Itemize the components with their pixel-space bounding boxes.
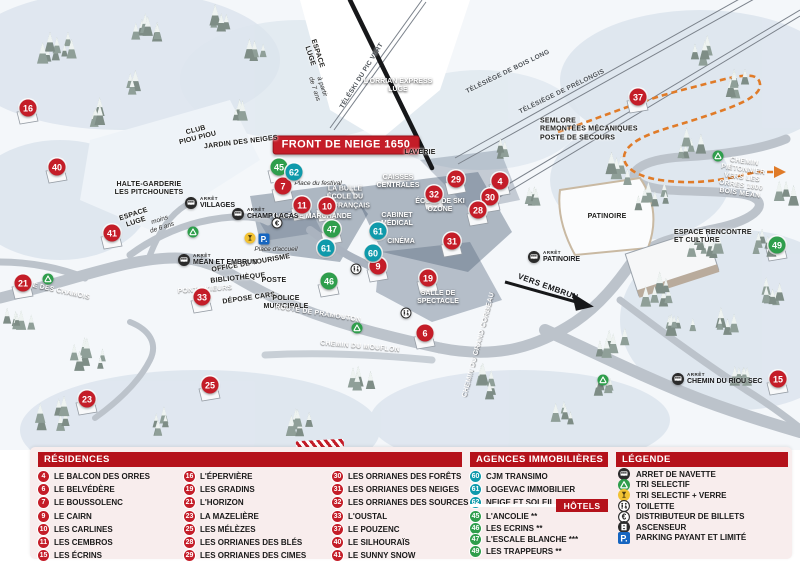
legend-item-label: LES ORRIANES DES SOURCES — [348, 498, 468, 507]
map-marker-61-26: 61 — [318, 240, 335, 257]
map-marker-47-22: 47 — [324, 221, 341, 238]
map-marker-11-8: 11 — [294, 197, 311, 214]
bus-stop-villages: ARRÊTVILLAGES — [185, 197, 235, 209]
recycle-icon — [598, 375, 609, 386]
svg-text:P.: P. — [620, 533, 627, 543]
legend-item-label: LA MAZELIÈRE — [200, 512, 259, 521]
legend-badge-40: 40 — [332, 537, 343, 548]
legend-badge-6: 6 — [38, 484, 49, 495]
legend-item-label: LE BOUSSOLENC — [54, 498, 123, 507]
recycle-icon — [188, 227, 199, 238]
legend-badge-10: 10 — [38, 524, 49, 535]
recycle-icon — [713, 151, 724, 162]
legend-badge-28: 28 — [184, 537, 195, 548]
legend-badge-47: 47 — [470, 534, 481, 545]
legend-item-label: LES MÉLÈZES — [200, 525, 256, 534]
map-label-7: CINÉMA — [387, 238, 415, 246]
legende-header: LÉGENDE — [616, 452, 788, 467]
legend-badge-19: 19 — [184, 484, 195, 495]
legend-item-9: 9LE CAIRN — [38, 510, 184, 523]
svg-text:€: € — [622, 512, 627, 521]
legend-item-31: 31LES ORRIANES DES NEIGES — [332, 483, 470, 496]
bus-stop-chemin-du-riou-sec: ARRÊTCHEMIN DU RIOU SEC — [672, 373, 762, 385]
bus-icon — [232, 208, 244, 220]
map-marker-33-6: 33 — [194, 289, 211, 306]
legend-item-label: L'ANCOLIE ** — [486, 512, 537, 521]
parking-icon: P. — [259, 234, 270, 245]
map-marker-21-3: 21 — [15, 275, 32, 292]
legend-item: ARRET DE NAVETTE — [618, 469, 788, 480]
legend-item-label: ARRET DE NAVETTE — [636, 470, 716, 479]
map-label-26: SEMLORE REMONTÉES MÉCANIQUES POSTE DE SE… — [540, 118, 638, 143]
legend-item: €DISTRIBUTEUR DE BILLETS — [618, 511, 788, 522]
legend-item-19: 19LES GRADINS — [184, 483, 330, 496]
legend-badge-31: 31 — [332, 484, 343, 495]
legend-badge-32: 32 — [332, 497, 343, 508]
map-marker-16-0: 16 — [20, 100, 37, 117]
legend-item-45: 45L'ANCOLIE ** — [470, 511, 608, 523]
map-label-11: BIBLIOTHÈQUE — [210, 272, 266, 286]
legend-item-label: LE BALCON DES ORRES — [54, 472, 150, 481]
legend-item-label: LE POUZENC — [348, 525, 400, 534]
map-label-28: PATINOIRE — [588, 213, 627, 221]
legend-item: TOILETTE — [618, 501, 788, 512]
legend-item-41: 41LE SUNNY SNOW — [332, 549, 470, 562]
resort-map-page: FRONT DE NEIGE 1650LAVERIECAISSES CENTRA… — [0, 0, 800, 565]
bus-icon — [178, 254, 190, 266]
map-marker-23-4: 23 — [79, 391, 96, 408]
residences-column-1: 4LE BALCON DES ORRES6LE BELVÉDÈRE7LE BOU… — [38, 470, 184, 562]
legend-item-label: LE SUNNY SNOW — [348, 551, 415, 560]
legend-item-label: LES ORRIANES DES NEIGES — [348, 485, 459, 494]
legend-item-29: 29LES ORRIANES DES CIMES — [184, 549, 330, 562]
map-label-24: TÉLÉSIÈGE DE BOIS LONG — [465, 48, 551, 95]
map-label-15: HALTE-GARDERIE LES PITCHOUNETS — [115, 181, 184, 198]
svg-text:€: € — [275, 218, 279, 227]
legend-item-28: 28LES ORRIANES DES BLÉS — [184, 536, 330, 549]
legend-badge-29: 29 — [184, 550, 195, 561]
legend-badge-11: 11 — [38, 537, 49, 548]
map-label-6: CABINET MÉDICAL — [381, 212, 413, 229]
recycle-icon — [352, 323, 363, 334]
glass-icon — [245, 233, 256, 244]
legend-badge-16: 16 — [184, 471, 195, 482]
agencies-header: AGENCES IMMOBILIÈRES — [470, 452, 608, 467]
map-marker-40-1: 40 — [49, 159, 66, 176]
map-marker-37-19: 37 — [630, 89, 647, 106]
map-marker-46-23: 46 — [321, 273, 338, 290]
legend-item-11: 11LES CEMBROS — [38, 536, 184, 549]
legend-item-label: LES ÉCRINS — [54, 551, 102, 560]
legend-item-4: 4LE BALCON DES ORRES — [38, 470, 184, 483]
legend-item-61: 61LOGEVAC IMMOBILIER — [470, 483, 608, 496]
legend-item-label: LES ECRINS ** — [486, 524, 542, 533]
legend-badge-61: 61 — [470, 484, 481, 495]
map-marker-30-17: 30 — [482, 189, 499, 206]
legend-badge-37: 37 — [332, 524, 343, 535]
legend-item-label: LES CARLINES — [54, 525, 113, 534]
legend-item-6: 6LE BELVÉDÈRE — [38, 483, 184, 496]
legend-badge-4: 4 — [38, 471, 49, 482]
map-marker-62-25: 62 — [286, 164, 303, 181]
map-marker-49-24: 49 — [769, 237, 786, 254]
legend-badge-46: 46 — [470, 523, 481, 534]
legend-badge-33: 33 — [332, 511, 343, 522]
legend-item-60: 60CJM TRANSIMO — [470, 470, 608, 483]
map-overlay: FRONT DE NEIGE 1650LAVERIECAISSES CENTRA… — [0, 0, 800, 450]
bus-stop-m-an-et-embrun: ARRÊTMÉAN ET EMBRUN — [178, 254, 257, 266]
legend-item-label: L'HORIZON — [200, 498, 244, 507]
legend-item-label: DISTRIBUTEUR DE BILLETS — [636, 512, 744, 521]
front-de-neige-banner: FRONT DE NEIGE 1650 — [273, 136, 420, 155]
legend-badge-9: 9 — [38, 511, 49, 522]
svg-text:P.: P. — [261, 235, 268, 244]
legend-badge-41: 41 — [332, 550, 343, 561]
legend-item-label: TRI SELECTIF + VERRE — [636, 491, 726, 500]
legend-badge-23: 23 — [184, 511, 195, 522]
legend-item-40: 40LE SILHOURAÏS — [332, 536, 470, 549]
map-label-16: ESPACE LUGE — [118, 207, 151, 232]
legend-item: ASCENSEUR — [618, 522, 788, 533]
legend-item-label: LE SILHOURAÏS — [348, 538, 410, 547]
residences-column-2: 16L'ÉPERVIÈRE19LES GRADINS21L'HORIZON23L… — [184, 470, 330, 562]
legend-item-label: LES CEMBROS — [54, 538, 113, 547]
bus-icon — [672, 373, 684, 385]
legend-item-33: 33L'OUSTAL — [332, 510, 470, 523]
legend-item-label: LE BELVÉDÈRE — [54, 485, 115, 494]
map-marker-31-12: 31 — [444, 233, 461, 250]
map-marker-19-11: 19 — [420, 270, 437, 287]
bus-stop-patinoire: ARRÊTPATINOIRE — [528, 251, 580, 263]
legend-badge-30: 30 — [332, 471, 343, 482]
residences-column-3: 30LES ORRIANES DES FORÊTS31LES ORRIANES … — [332, 470, 470, 562]
legend-item-label: LES ORRIANES DES BLÉS — [200, 538, 302, 547]
legend-item-15: 15LES ÉCRINS — [38, 549, 184, 562]
map-label-21: à partir de 7 ans — [307, 74, 329, 102]
euro-icon: € — [272, 218, 283, 229]
legend-item-label: CJM TRANSIMO — [486, 472, 548, 481]
map-label-29: ESPACE RENCONTRE ET CULTURE — [674, 229, 752, 246]
legend-item-label: LES TRAPPEURS ** — [486, 547, 562, 556]
map-label-35: CHEMIN DU GRAND CORBEAU — [461, 292, 497, 399]
legend-item: P.PARKING PAYANT ET LIMITÉ — [618, 533, 788, 544]
bus-icon — [185, 197, 197, 209]
legend-badge-60: 60 — [470, 471, 481, 482]
residences-header: RÉSIDENCES — [38, 452, 462, 467]
map-label-25: TÉLÉSIÈGE DE PRÉLONGIS — [518, 68, 606, 116]
legend-item-label: LES ORRIANES DES CIMES — [200, 551, 306, 560]
wc-icon — [351, 264, 362, 275]
map-marker-28-18: 28 — [470, 202, 487, 219]
map-label-12: POSTE — [262, 277, 287, 285]
map-marker-4-15: 4 — [492, 173, 509, 190]
legend-item-32: 32LES ORRIANES DES SOURCES — [332, 496, 470, 509]
map-marker-60-28: 60 — [365, 245, 382, 262]
legend-item-16: 16L'ÉPERVIÈRE — [184, 470, 330, 483]
map-marker-25-5: 25 — [202, 377, 219, 394]
legend-item-label: LOGEVAC IMMOBILIER — [486, 485, 575, 494]
legend-item-25: 25LES MÉLÈZES — [184, 523, 330, 536]
legend-panel: RÉSIDENCES AGENCES IMMOBILIÈRES LÉGENDE … — [30, 447, 792, 559]
legend-item-23: 23LA MAZELIÈRE — [184, 510, 330, 523]
map-label-2: CAISSES CENTRALES — [377, 174, 420, 191]
map-marker-6-13: 6 — [417, 325, 434, 342]
map-label-34: CHEMIN DU MOUFLON — [320, 340, 400, 355]
legend-item-46: 46LES ECRINS ** — [470, 523, 608, 535]
map-label-23: TÉLÉSKI DU PIC VERT — [339, 42, 386, 111]
legende-column: ARRET DE NAVETTETRI SELECTIFTRI SELECTIF… — [618, 469, 788, 543]
wc-icon — [401, 308, 412, 319]
legend-badge-21: 21 — [184, 497, 195, 508]
map-marker-61-27: 61 — [370, 223, 387, 240]
legend-badge-15: 15 — [38, 550, 49, 561]
legend-badge-49: 49 — [470, 546, 481, 557]
map-label-9: SALLE DE SPECTACLE — [417, 290, 459, 307]
legend-item-label: ASCENSEUR — [636, 523, 686, 532]
legend-item-label: L'ESCALE BLANCHE *** — [486, 535, 578, 544]
map-label-36: Place d'accueil — [254, 246, 297, 254]
legend-item-label: LES ORRIANES DES FORÊTS — [348, 472, 461, 481]
map-marker-10-9: 10 — [319, 198, 336, 215]
legend-item-label: L'ÉPERVIÈRE — [200, 472, 252, 481]
bus-icon — [528, 251, 540, 263]
legend-item-label: TRI SELECTIF — [636, 480, 690, 489]
map-label-30: VERS EMBRUN — [517, 272, 580, 303]
map-label-17: moins de 6 ans — [147, 213, 175, 235]
parking-icon: P. — [618, 532, 630, 544]
recycle-icon — [43, 274, 54, 285]
map-marker-15-20: 15 — [770, 371, 787, 388]
legend-badge-25: 25 — [184, 524, 195, 535]
map-label-4: Place du festival — [294, 180, 341, 188]
legend-item-7: 7LE BOUSSOLENC — [38, 496, 184, 509]
legend-item-49: 49LES TRAPPEURS ** — [470, 546, 608, 558]
map-label-1: LAVERIE — [404, 149, 435, 157]
legend-item-label: TOILETTE — [636, 502, 675, 511]
legend-badge-45: 45 — [470, 511, 481, 522]
legend-item-10: 10LES CARLINES — [38, 523, 184, 536]
resort-map: FRONT DE NEIGE 1650LAVERIECAISSES CENTRA… — [0, 0, 800, 450]
legend-item-label: PARKING PAYANT ET LIMITÉ — [636, 533, 746, 542]
bus-stop-champ-lacas: ARRÊTCHAMP LACAS — [232, 208, 299, 220]
legend-item-label: LE CAIRN — [54, 512, 92, 521]
legend-item-21: 21L'HORIZON — [184, 496, 330, 509]
legend-item-37: 37LE POUZENC — [332, 523, 470, 536]
hotels-column: 45L'ANCOLIE **46LES ECRINS **47L'ESCALE … — [470, 511, 608, 557]
map-marker-29-14: 29 — [448, 171, 465, 188]
map-label-33: ROUTE DE PRAMOUTON — [274, 303, 361, 325]
map-marker-32-16: 32 — [426, 186, 443, 203]
legend-item: TRI SELECTIF + VERRE — [618, 490, 788, 501]
map-label-8: ÉCOLE DE SKI OZONE — [415, 198, 464, 215]
legend-item: TRI SELECTIF — [618, 480, 788, 491]
legend-badge-7: 7 — [38, 497, 49, 508]
map-marker-41-2: 41 — [104, 225, 121, 242]
legend-item-30: 30LES ORRIANES DES FORÊTS — [332, 470, 470, 483]
map-label-20: ESPACE LUGE — [301, 38, 326, 71]
legend-item-label: LES GRADINS — [200, 485, 255, 494]
legend-item-47: 47L'ESCALE BLANCHE *** — [470, 534, 608, 546]
map-label-22: L'ORRIAN EXPRESS LUGE — [364, 78, 433, 95]
map-marker-7-7: 7 — [275, 178, 292, 195]
legend-item-label: L'OUSTAL — [348, 512, 387, 521]
